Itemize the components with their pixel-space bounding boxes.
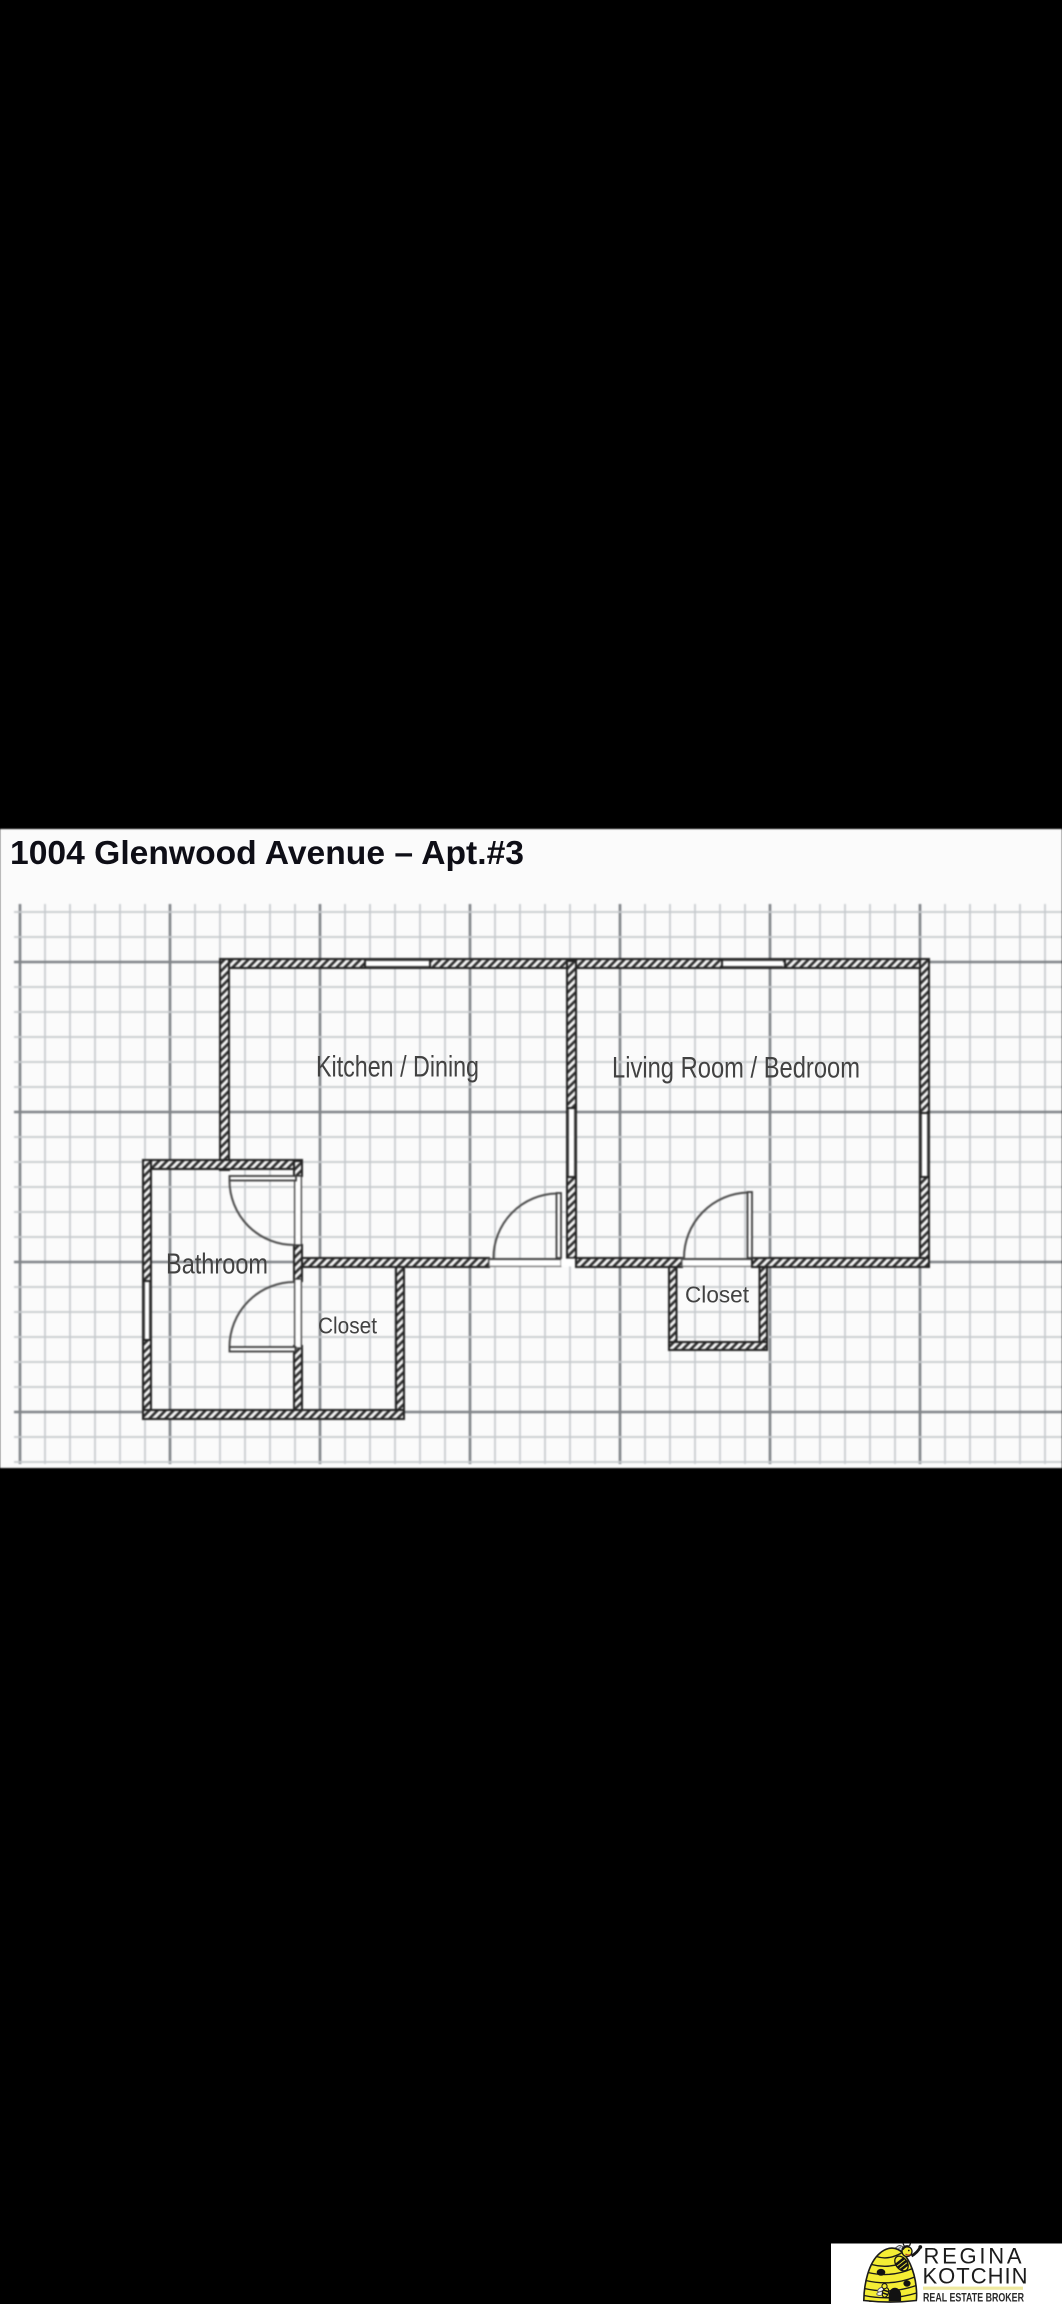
- svg-text:Living Room / Bedroom: Living Room / Bedroom: [612, 1052, 860, 1085]
- svg-text:Kitchen / Dining: Kitchen / Dining: [316, 1051, 479, 1084]
- svg-text:Bathroom: Bathroom: [166, 1249, 268, 1281]
- svg-text:1004 Glenwood Avenue – Apt.#3: 1004 Glenwood Avenue – Apt.#3: [10, 834, 524, 871]
- svg-text:REAL ESTATE BROKER: REAL ESTATE BROKER: [923, 2291, 1024, 2304]
- svg-text:KOTCHIN: KOTCHIN: [923, 2263, 1028, 2288]
- svg-text:Closet: Closet: [318, 1313, 378, 1339]
- svg-text:Closet: Closet: [685, 1282, 750, 1308]
